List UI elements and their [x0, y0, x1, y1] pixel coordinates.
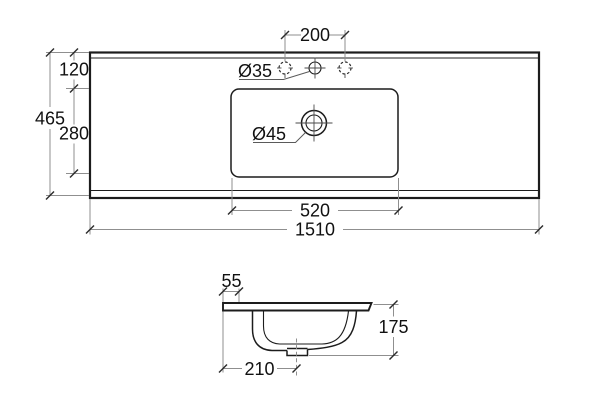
drain-hole: [296, 105, 333, 142]
dim-basin-width: 520: [228, 178, 403, 221]
drain-fitting: [287, 349, 308, 356]
dim-overall-height-label: 175: [378, 317, 408, 337]
dim-basin-width-label: 520: [300, 201, 330, 221]
dim-basin-depth-label: 280: [59, 124, 89, 144]
dim-tap-offset: 55: [219, 271, 243, 302]
optional-tap-hole-left: [277, 62, 293, 78]
slab-profile: [223, 303, 372, 311]
drawing-canvas: 200 Ø35 Ø45 465: [0, 0, 600, 409]
dim-basin-depth: 280: [59, 89, 89, 178]
dim-back-offset: 120: [59, 49, 89, 93]
dim-overall-width-label: 1510: [295, 220, 335, 240]
top-view: 200 Ø35 Ø45 465: [35, 25, 543, 240]
bowl-inner-surface: [264, 311, 349, 345]
side-view: 55 175 210: [219, 271, 409, 379]
tap-hole: [305, 58, 326, 79]
dim-drain-offset-label: 210: [244, 359, 274, 379]
dim-tap-diameter: Ø35: [238, 61, 310, 81]
dim-tap-offset-label: 55: [221, 271, 241, 291]
dim-tap-spacing: 200: [281, 25, 349, 62]
dim-back-offset-label: 120: [59, 60, 89, 80]
optional-tap-hole-right: [337, 62, 353, 78]
dim-drain-diameter: Ø45: [252, 124, 306, 144]
dim-drain-diameter-label: Ø45: [252, 124, 286, 144]
dim-drain-offset: 210: [219, 312, 301, 380]
dim-tap-spacing-label: 200: [300, 25, 330, 45]
dim-tap-diameter-label: Ø35: [238, 61, 272, 81]
technical-drawing-svg: 200 Ø35 Ø45 465: [0, 0, 600, 409]
